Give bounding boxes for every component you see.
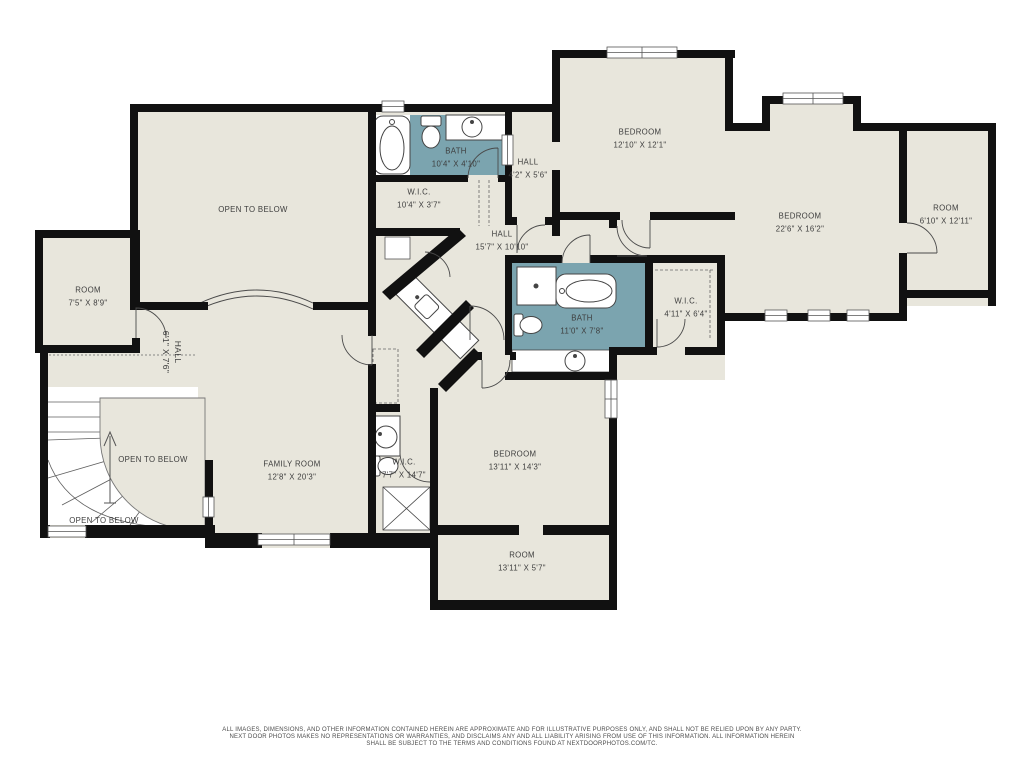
room-label-room-right: ROOM 6'10" X 12'11" [920,202,972,227]
window [783,93,843,104]
window [258,534,330,545]
room-label-bath-center: BATH 11'0" X 7'8" [560,312,603,337]
room-label-hall-vertical: HALL 6'1" X 7'6" [160,331,184,373]
disclaimer-line-1: ALL IMAGES, DIMENSIONS, AND OTHER INFORM… [0,727,1024,734]
room-label-hall-center: HALL 15'7" X 10'10" [475,228,528,253]
window [808,310,830,321]
sink-nook-center [512,350,613,372]
bathtub-center [556,274,616,308]
room-label-bath-top: BATH 10'4" X 4'10" [432,145,480,170]
window [48,526,86,537]
room-label-room-bottom: ROOM 13'11" X 5'7" [498,549,546,574]
room-label-wic-center: W.I.C. 4'11" X 6'4" [664,295,707,320]
sink-counter-top [446,115,506,140]
disclaimer-line-2: NEXT DOOR PHOTOS MAKES NO REPRESENTATION… [0,734,1024,741]
room-label-wic-strip: W.I.C. 7'7" X 14'7" [382,456,426,481]
window [765,310,787,321]
closet-shelf [385,237,410,259]
room-label-open-to-below-upper: OPEN TO BELOW [218,203,288,216]
room-label-hall-small: HALL 4'2" X 5'6" [508,156,547,181]
bathtub-top [374,116,410,174]
room-label-bedroom-2: BEDROOM 22'6" X 16'2" [776,210,824,235]
window [607,47,677,58]
disclaimer-line-3: SHALL BE SUBJECT TO THE TERMS AND CONDIT… [0,741,1024,748]
room-label-bedroom-3: BEDROOM 13'11" X 14'3" [489,448,541,473]
window [605,380,617,418]
room-label-open-to-below-mid: OPEN TO BELOW [118,453,188,466]
room-label-wic-top: W.I.C. 10'4" X 3'7" [397,186,441,211]
linen-closet [383,487,430,530]
window [847,310,869,321]
room-label-family-room: FAMILY ROOM 12'8" X 20'3" [263,458,320,483]
window [203,497,214,517]
room-label-bedroom-1: BEDROOM 12'10" X 12'1" [613,126,666,151]
floor-plan-drawing [0,0,1024,768]
sink-wic-strip [372,416,400,456]
room-label-room-left: ROOM 7'5" X 8'9" [68,284,107,309]
disclaimer-text: ALL IMAGES, DIMENSIONS, AND OTHER INFORM… [0,727,1024,749]
floor-plan-page: OPEN TO BELOW BATH 10'4" X 4'10" W.I.C. … [0,0,1024,768]
room-label-open-to-below-stairs: OPEN TO BELOW [69,514,139,527]
shower [517,267,556,305]
window [382,101,404,112]
toilet-top [421,116,441,148]
